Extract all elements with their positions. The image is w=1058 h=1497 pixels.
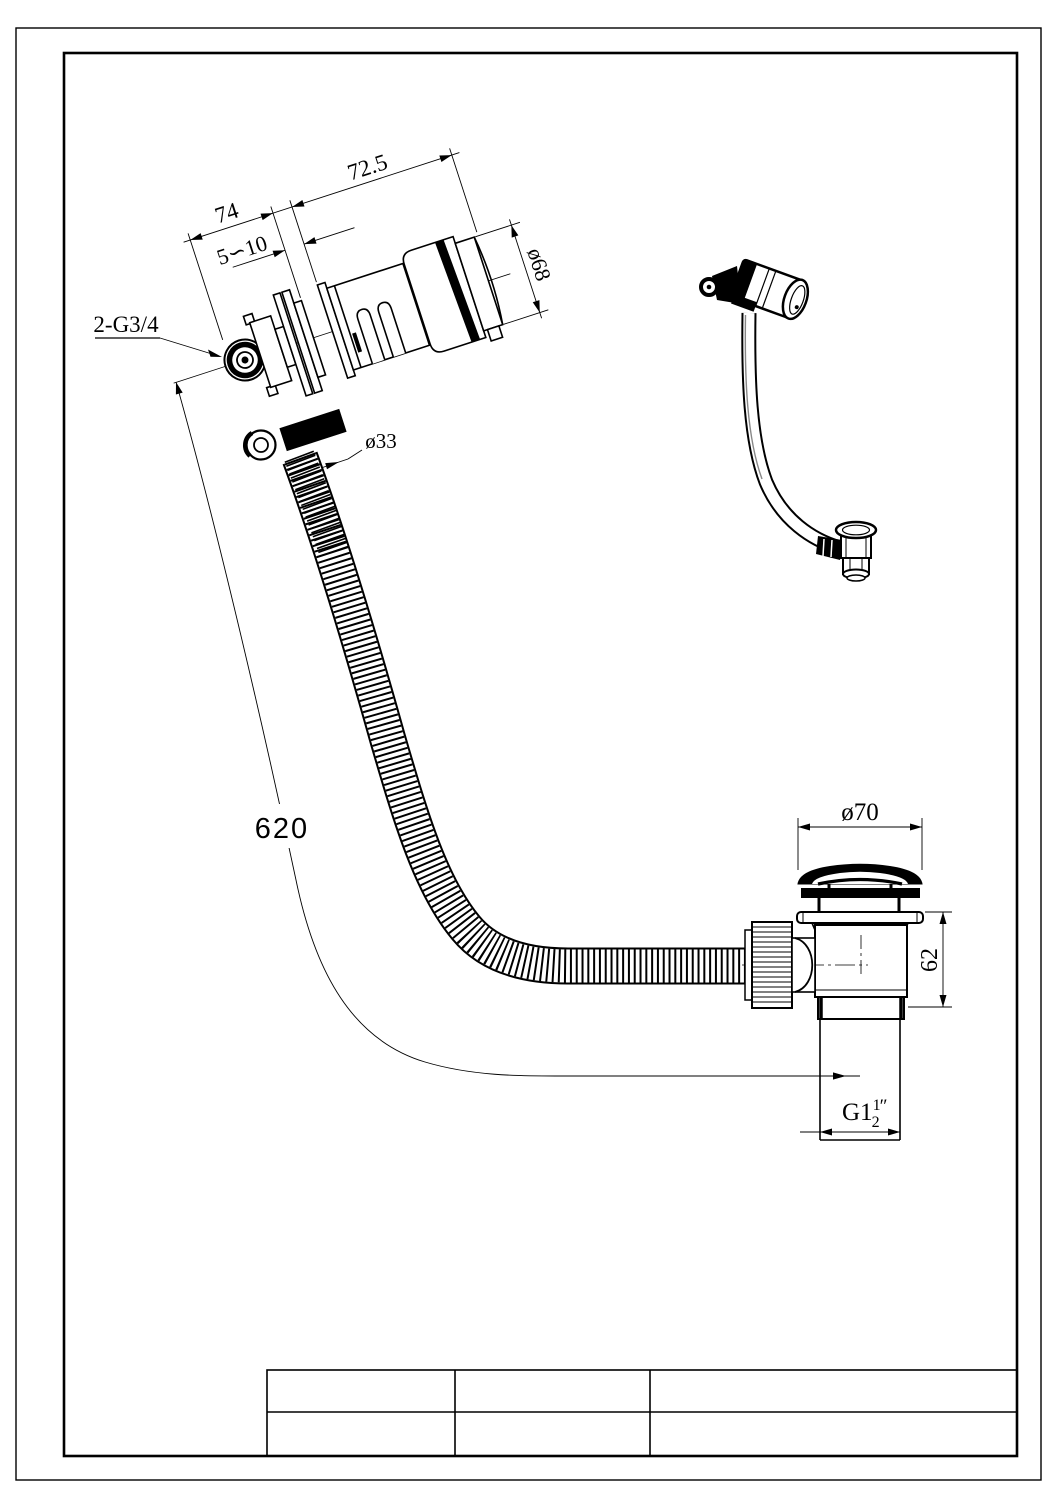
dim-label-72-5: 72.5 xyxy=(344,149,390,185)
dim-label-62: 62 xyxy=(917,948,943,972)
waste-cap xyxy=(798,864,922,912)
assembly-iso-view xyxy=(701,259,876,581)
title-block xyxy=(267,1370,1017,1456)
leader-arrow xyxy=(208,350,222,358)
outer-border xyxy=(16,28,1041,1480)
overflow-filler-detail-view: 74 72.5 5∽10 ø68 2-G3/4 xyxy=(93,110,569,478)
waste-cap-gasket xyxy=(801,888,920,898)
dim-label-d70: ø70 xyxy=(841,799,879,826)
waste-body xyxy=(797,912,923,997)
overflow-outlet-collar xyxy=(245,409,346,460)
inlet-thread-label: 2-G3/4 xyxy=(93,312,222,357)
iso-tube-outline xyxy=(749,313,840,548)
dim-label-g1-2: G112″ xyxy=(842,1096,887,1131)
iso-waste xyxy=(816,522,876,581)
technical-drawing-canvas: 74 72.5 5∽10 ø68 2-G3/4 xyxy=(0,0,1058,1497)
flexible-hose xyxy=(299,456,748,966)
dim-label-2-g34: 2-G3/4 xyxy=(93,312,159,337)
iso-overflow-head xyxy=(701,259,813,328)
hose-clamp-band xyxy=(279,409,346,451)
pop-up-waste-detail-view: ø70 62 G112″ xyxy=(742,799,952,1140)
dim-label-74: 74 xyxy=(212,197,242,228)
waste-knurled-nut xyxy=(745,922,815,1008)
dim-arrow-start xyxy=(176,382,183,395)
title-block-frame xyxy=(267,1370,1017,1456)
dimension-waste-height: 62 xyxy=(908,912,952,1007)
hose-corrugations xyxy=(300,458,748,966)
dim-label-620: 620 xyxy=(255,813,309,845)
drawing-sheet: 74 72.5 5∽10 ø68 2-G3/4 xyxy=(0,0,1058,1497)
dim-label-d33: ø33 xyxy=(365,429,397,453)
dimension-waste-cap-diameter: ø70 xyxy=(798,799,922,870)
dimension-outlet-thread: G112″ xyxy=(800,1096,900,1136)
dim-label-d68: ø68 xyxy=(522,245,556,284)
dim-arrow-end xyxy=(833,1072,846,1079)
